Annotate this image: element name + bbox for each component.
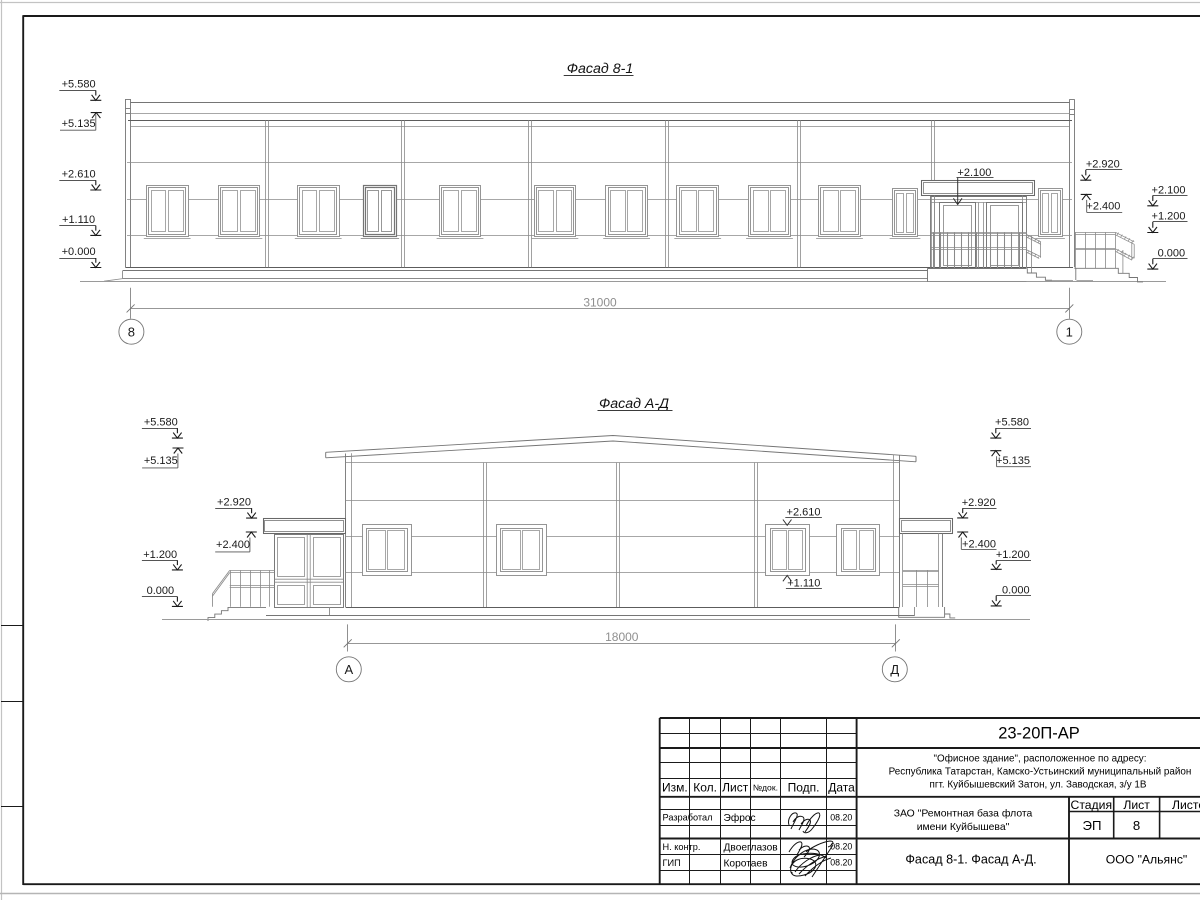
- svg-text:+1.110: +1.110: [62, 214, 95, 226]
- svg-text:+2.400: +2.400: [216, 539, 250, 551]
- svg-text:8: 8: [128, 324, 135, 339]
- svg-text:8: 8: [1133, 818, 1140, 833]
- svg-text:31000: 31000: [583, 295, 617, 309]
- svg-text:№док.: №док.: [753, 783, 778, 793]
- svg-text:Листов: Листов: [1172, 798, 1200, 812]
- svg-text:+5.135: +5.135: [996, 455, 1030, 467]
- svg-text:ГИП: ГИП: [663, 858, 681, 868]
- svg-text:+2.610: +2.610: [787, 506, 821, 518]
- svg-text:имени Куйбышева": имени Куйбышева": [917, 821, 1010, 833]
- svg-text:+2.920: +2.920: [217, 497, 251, 509]
- svg-text:Фасад 8-1. Фасад А-Д.: Фасад 8-1. Фасад А-Д.: [905, 853, 1036, 867]
- svg-text:ЗАО "Ремонтная база флота: ЗАО "Ремонтная база флота: [894, 808, 1033, 820]
- svg-text:18000: 18000: [605, 630, 639, 644]
- svg-text:Фасад 8-1: Фасад 8-1: [567, 61, 633, 77]
- svg-text:Разработал: Разработал: [663, 813, 713, 823]
- svg-text:+2.920: +2.920: [1086, 159, 1120, 171]
- svg-text:Фасад А-Д: Фасад А-Д: [599, 396, 669, 412]
- svg-text:Эфрос: Эфрос: [724, 812, 756, 824]
- svg-text:+1.200: +1.200: [1152, 211, 1186, 223]
- svg-text:+2.100: +2.100: [1152, 184, 1186, 196]
- svg-text:1: 1: [1066, 324, 1073, 339]
- svg-text:Кол.: Кол.: [693, 781, 717, 795]
- svg-text:Дата: Дата: [828, 781, 855, 795]
- svg-text:Изм.: Изм.: [662, 781, 688, 795]
- svg-text:+2.400: +2.400: [962, 538, 996, 550]
- svg-text:0.000: 0.000: [1002, 584, 1030, 596]
- svg-text:08.20: 08.20: [830, 842, 852, 852]
- svg-text:+5.135: +5.135: [62, 118, 96, 130]
- svg-text:+5.135: +5.135: [144, 455, 178, 467]
- svg-text:ЭП: ЭП: [1083, 818, 1102, 833]
- svg-text:Стадия: Стадия: [1071, 798, 1113, 812]
- svg-text:+1.110: +1.110: [787, 577, 820, 589]
- svg-text:08.20: 08.20: [830, 812, 852, 822]
- svg-text:Подп.: Подп.: [788, 781, 820, 795]
- svg-text:+2.610: +2.610: [62, 168, 96, 180]
- svg-text:пгт. Куйбышевский Затон, ул. З: пгт. Куйбышевский Затон, ул. Заводская, …: [930, 780, 1147, 791]
- svg-text:Лист: Лист: [1123, 798, 1150, 812]
- svg-text:+0.000: +0.000: [62, 246, 96, 258]
- svg-text:+5.580: +5.580: [62, 79, 96, 91]
- svg-text:Лист: Лист: [722, 781, 749, 795]
- svg-text:Двоеглазов: Двоеглазов: [724, 842, 778, 853]
- svg-text:0.000: 0.000: [1158, 248, 1186, 260]
- svg-text:+2.100: +2.100: [957, 167, 991, 179]
- svg-text:ООО "Альянс": ООО "Альянс": [1106, 853, 1188, 867]
- svg-text:+2.400: +2.400: [1086, 200, 1120, 212]
- svg-text:Д: Д: [890, 662, 899, 677]
- svg-text:+5.580: +5.580: [144, 417, 178, 429]
- svg-text:"Офисное здание", расположенно: "Офисное здание", расположенное по адрес…: [934, 754, 1147, 765]
- svg-text:Коротаев: Коротаев: [724, 858, 768, 869]
- svg-text:+1.200: +1.200: [996, 549, 1030, 561]
- svg-text:+1.200: +1.200: [143, 549, 177, 561]
- svg-text:08.20: 08.20: [830, 858, 852, 868]
- svg-text:А: А: [344, 662, 353, 677]
- svg-text:+5.580: +5.580: [995, 417, 1029, 429]
- svg-text:Республика Татарстан, Камско-У: Республика Татарстан, Камско-Устьинский …: [889, 767, 1192, 778]
- svg-text:0.000: 0.000: [147, 585, 175, 597]
- svg-text:Н. контр.: Н. контр.: [663, 842, 701, 852]
- svg-text:23-20П-АР: 23-20П-АР: [998, 725, 1080, 743]
- svg-text:+2.920: +2.920: [962, 497, 996, 509]
